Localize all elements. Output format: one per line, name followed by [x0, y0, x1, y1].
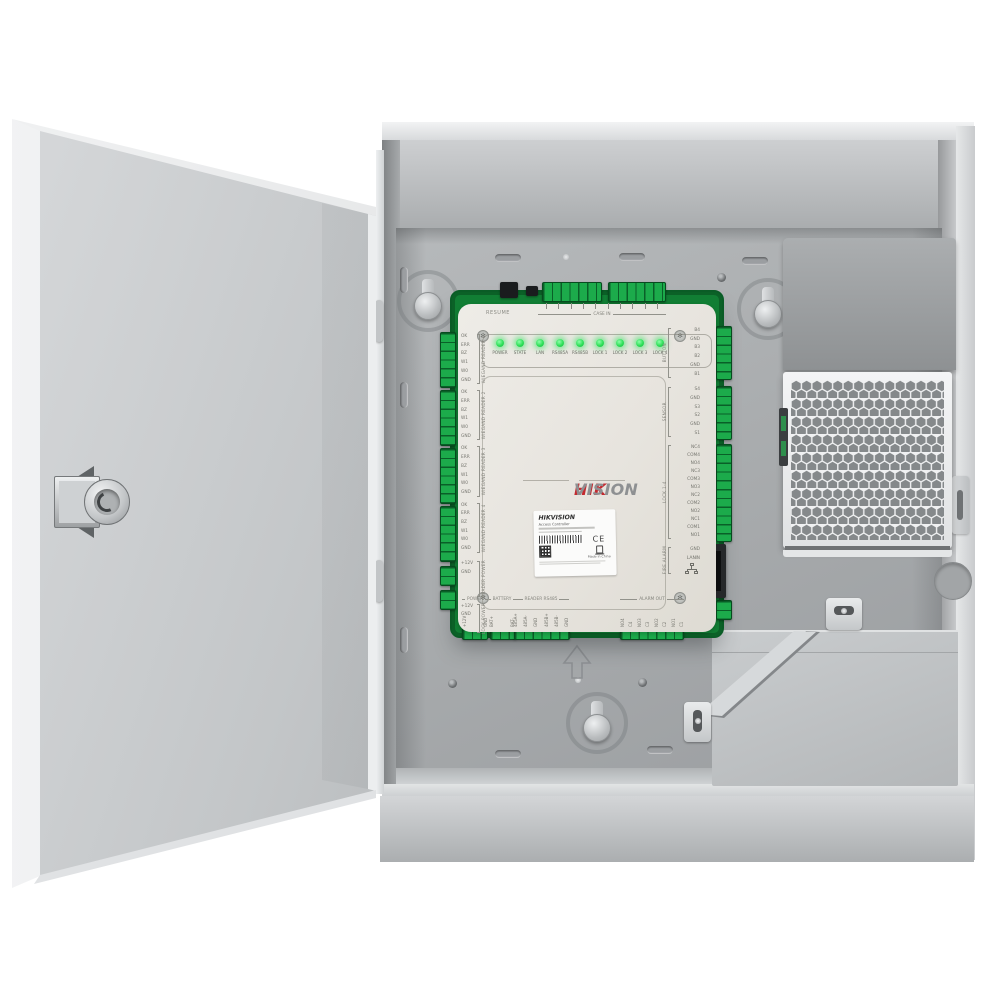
label-text-line: [539, 531, 582, 533]
led-light: [556, 339, 564, 347]
pin-label: GND: [483, 603, 488, 627]
ethernet-icon: [685, 563, 698, 574]
terminal-block-wiegand-2: [440, 390, 456, 446]
right-terminal-labels: BUTTONB4GNDB3B2GNDB1SENSORS4GNDS3S2GNDS1…: [662, 327, 704, 581]
group-name-row: POWER: [462, 596, 488, 602]
pin-label: NO3: [672, 484, 700, 492]
terminal-group-wiegand-reader-1: OKERRBZW1W0GNDWIEGAND READER 1: [461, 333, 489, 385]
pin-labels: OKERRBZW1W0GND: [461, 333, 476, 385]
pin-label: BZ: [461, 463, 476, 472]
pin-label: OK: [461, 333, 476, 342]
logo-vision: VISION: [574, 480, 638, 499]
terminal-group-lock-1-4: LOCK 1-4NC4COM4NO4NC3COM3NO3NC2COM2NO2NC…: [662, 444, 704, 540]
label-address-line: [539, 563, 600, 565]
mounting-slot: [647, 746, 673, 754]
led-item: LOCK 2: [610, 339, 630, 365]
pin-label: GND: [672, 421, 700, 430]
mounting-slot: [400, 627, 408, 653]
terminal-block-button: [716, 326, 732, 380]
pin-label: ERR: [461, 398, 476, 407]
pin-label: GND: [564, 603, 569, 627]
led-label: POWER: [490, 350, 510, 355]
terminal-block-lock: [716, 444, 732, 542]
terminal-block-case-in-b: [608, 282, 666, 302]
group-name: LOCK 1-4: [662, 444, 667, 540]
pin-label: NO4: [620, 603, 625, 627]
group-name: READER POWER: [481, 560, 486, 598]
mounting-screw: [717, 273, 726, 282]
pin-label: ERR: [461, 342, 476, 351]
tamper-switch: [500, 282, 518, 298]
group-name: BUTTON: [662, 327, 667, 379]
led-light: [536, 339, 544, 347]
battery-box-top-edge: [712, 630, 958, 632]
pin-label: NO1: [671, 603, 676, 627]
led-label: STATE: [510, 350, 530, 355]
pin-label: GND: [672, 336, 700, 345]
power-supply-unit: [783, 372, 952, 548]
mounting-slot: [400, 382, 408, 408]
door-lock: [54, 462, 134, 542]
led-light: [616, 339, 624, 347]
pin-label: COM4: [672, 452, 700, 460]
label-text-line: [539, 527, 595, 530]
terminal-group-button: BUTTONB4GNDB3B2GNDB1: [662, 327, 704, 379]
pin-label: OK: [461, 502, 476, 511]
led-label: RS485B: [570, 350, 590, 355]
case-in-group: CASE IN: [538, 303, 666, 309]
terminal-block-fire-alarm: [716, 600, 732, 620]
pin-label: COM2: [672, 500, 700, 508]
led-light: [596, 339, 604, 347]
group-bracket: [668, 387, 671, 437]
led-label: LOCK 2: [610, 350, 630, 355]
pin-label: COM3: [672, 476, 700, 484]
mounting-clamp: [684, 702, 711, 742]
pin-label: GND: [461, 569, 476, 578]
led-label: LOCK 1: [590, 350, 610, 355]
enclosure-bottom-front: [380, 796, 974, 862]
terminal-block-sensor: [716, 386, 732, 440]
pin-label: GND: [461, 489, 476, 498]
terminal-group-wiegand-reader-2: OKERRBZW1W0GNDWIEGAND READER 2: [461, 389, 489, 441]
pin-label: 485B+: [544, 603, 549, 627]
led-label: LAN: [530, 350, 550, 355]
group-bracket: [668, 445, 671, 539]
honeycomb-vent: [791, 380, 944, 540]
terminal-pin-mark: [583, 303, 584, 309]
terminal-group-alarm-out: ALARM OUTNO4C4NO3C3NO2C2NO1C1: [620, 596, 684, 628]
board-component: [526, 286, 538, 296]
led-light: [576, 339, 584, 347]
mounting-slot: [495, 750, 521, 758]
group-name: SENSOR: [662, 386, 667, 438]
pin-label: NO3: [637, 603, 642, 627]
group-name: WIEGAND READER 1: [481, 333, 486, 385]
keyhole-mount-bottom-center: [566, 692, 628, 754]
group-name-row: BATTERY: [489, 596, 515, 602]
terminal-block-case-in-a: [542, 282, 602, 302]
pin-label: S2: [672, 412, 700, 421]
terminal-pin-mark: [571, 303, 572, 309]
lan-group: LAN: [664, 556, 702, 574]
terminal-group-wiegand-reader-3: OKERRBZW1W0GNDWIEGAND READER 3: [461, 445, 489, 497]
up-arrow-emboss: [560, 644, 594, 680]
pin-label: B4: [672, 327, 700, 336]
pin-labels: 485A+485A-GND485B+485B-GND: [513, 603, 569, 627]
enclosure-top-wall: [396, 140, 956, 230]
led-item: STATE: [510, 339, 530, 365]
hinge-knuckle: [375, 300, 383, 342]
terminal-pin-mark: [620, 303, 621, 309]
pin-label: BAT+: [489, 603, 494, 627]
led-status-row: POWERSTATELANRS485ARS485BLOCK 1LOCK 2LOC…: [490, 339, 670, 365]
group-name: WIEGAND READER 2: [481, 389, 486, 441]
pin-label: GND: [461, 377, 476, 386]
group-name: ALARM OUT: [639, 597, 665, 602]
terminal-group-reader-rs485: READER RS485485A+485A-GND485B+485B-GND: [513, 596, 569, 628]
pin-label: W0: [461, 368, 476, 377]
pin-label: ERR: [461, 454, 476, 463]
pin-label: W1: [461, 359, 476, 368]
pin-labels: S4GNDS3S2GNDS1: [672, 386, 700, 438]
group-bracket: [477, 561, 480, 597]
pin-labels: OKERRBZW1W0GND: [461, 445, 476, 497]
pin-label: GND: [672, 546, 700, 555]
terminal-group-sensor: SENSORS4GNDS3S2GNDS1: [662, 386, 704, 438]
led-item: LOCK 3: [630, 339, 650, 365]
hikvision-logo: HIKVISION: [482, 470, 666, 490]
terminal-pin-mark: [546, 303, 547, 309]
pin-label: BZ: [461, 350, 476, 359]
pin-label: C1: [679, 603, 684, 627]
pin-labels: NC4COM4NO4NC3COM3NO3NC2COM2NO2NC1COM1NO1: [672, 444, 700, 540]
panel-hole: [563, 254, 569, 260]
led-item: POWER: [490, 339, 510, 365]
led-item: RS485B: [570, 339, 590, 365]
group-name: WIEGAND READER 4: [481, 502, 486, 554]
group-name: READER RS485: [525, 597, 558, 602]
terminal-pin-mark: [632, 303, 633, 309]
pin-labels: OKERRBZW1W0GND: [461, 502, 476, 554]
pin-label: GND: [533, 603, 538, 627]
group-name: WIEGAND READER 3: [481, 445, 486, 497]
terminal-pin-mark: [558, 303, 559, 309]
left-terminal-labels: OKERRBZW1W0GNDWIEGAND READER 1OKERRBZW1W…: [461, 333, 489, 634]
pin-label: S1: [672, 430, 700, 439]
pin-label: 485A-: [523, 603, 528, 627]
terminal-group-battery: BATTERYBAT+BAT-: [489, 596, 515, 628]
pin-label: ERR: [461, 510, 476, 519]
pin-label: GND: [461, 545, 476, 554]
group-name: BATTERY: [493, 597, 512, 602]
terminal-block-wiegand-1: [440, 332, 456, 388]
pin-labels: NO4C4NO3C3NO2C2NO1C1: [620, 603, 684, 627]
pin-label: W1: [461, 472, 476, 481]
group-bracket: [477, 334, 480, 384]
group-bracket: [477, 503, 480, 553]
pin-label: COM1: [672, 524, 700, 532]
pin-labels: +12VGND: [462, 603, 488, 627]
barcode: [539, 535, 583, 544]
led-item: LOCK 1: [590, 339, 610, 365]
pin-label: 485A+: [513, 603, 518, 627]
terminal-block-lock-power: [440, 590, 456, 610]
pin-label: W1: [461, 415, 476, 424]
mounting-slot: [742, 257, 768, 265]
mounting-slot: [400, 267, 408, 293]
pin-label: NO4: [672, 460, 700, 468]
pin-label: NC3: [672, 468, 700, 476]
pin-labels: B4GNDB3B2GNDB1: [672, 327, 700, 379]
qr-code: [539, 545, 551, 557]
terminal-group-wiegand-reader-4: OKERRBZW1W0GNDWIEGAND READER 4: [461, 502, 489, 554]
group-name: POWER: [467, 597, 483, 602]
pin-label: BZ: [461, 519, 476, 528]
hinge-edge: [376, 150, 384, 794]
enclosure-product-photo: ✻ ✻ ✻ ✻ RESUME CASE IN POWERSTATELANRS48…: [0, 0, 1000, 1000]
pin-label: +12V: [462, 603, 467, 627]
group-name-row: ALARM OUT: [620, 596, 684, 602]
led-label: RS485A: [550, 350, 570, 355]
lan-label: LAN: [664, 556, 702, 561]
group-bracket: [477, 390, 480, 440]
pin-label: NC4: [672, 444, 700, 452]
cable-knockout: [934, 562, 972, 600]
pin-label: GND: [461, 433, 476, 442]
led-label: LOCK 3: [630, 350, 650, 355]
terminal-block-wiegand-4: [440, 506, 456, 562]
terminal-group-power: POWER+12VGND: [462, 596, 488, 628]
label-product-name: Access Controller: [539, 521, 611, 527]
led-item: LAN: [530, 339, 550, 365]
case-in-label: CASE IN: [593, 312, 610, 317]
resume-label: RESUME: [486, 310, 510, 316]
ce-mark: CE: [587, 534, 611, 544]
pin-labels: BAT+BAT-: [489, 603, 515, 627]
battery-box-seam: [712, 652, 958, 653]
mounting-slot: [495, 254, 521, 262]
pin-label: NC1: [672, 516, 700, 524]
power-supply-cover-box: [783, 238, 956, 370]
led-item: RS485A: [550, 339, 570, 365]
led-light: [516, 339, 524, 347]
logo-line: [523, 480, 569, 481]
pin-label: NO2: [672, 508, 700, 516]
pin-label: GND: [672, 362, 700, 371]
pin-label: C3: [645, 603, 650, 627]
pin-label: B2: [672, 353, 700, 362]
led-light: [636, 339, 644, 347]
pin-label: 485B-: [554, 603, 559, 627]
pin-label: S4: [672, 386, 700, 395]
mounting-screw: [638, 678, 647, 687]
pin-label: NC2: [672, 492, 700, 500]
label-made-in: Made in China: [587, 555, 611, 560]
mounting-screw: [448, 679, 457, 688]
pin-label: BZ: [461, 407, 476, 416]
pin-label: +12V: [461, 560, 476, 569]
led-light: [496, 339, 504, 347]
door-latch-bracket: [952, 476, 969, 534]
pin-label: W0: [461, 536, 476, 545]
weee-bin-icon: [596, 545, 603, 553]
group-bracket: [477, 446, 480, 496]
terminal-block-reader-power: [440, 566, 456, 586]
pin-label: B3: [672, 344, 700, 353]
pin-label: B1: [672, 371, 700, 380]
pin-label: W0: [461, 480, 476, 489]
pin-labels: OKERRBZW1W0GND: [461, 389, 476, 441]
group-name-row: READER RS485: [513, 596, 569, 602]
psu-bottom-lip: [783, 550, 952, 557]
pin-label: C4: [628, 603, 633, 627]
mounting-slot: [619, 253, 645, 261]
enclosure-top-rim: [382, 122, 974, 140]
pin-label: C2: [662, 603, 667, 627]
group-bracket: [668, 328, 671, 378]
terminal-group-reader-power: +12VGNDREADER POWER: [461, 560, 489, 598]
pin-label: GND: [672, 395, 700, 404]
pin-label: S3: [672, 404, 700, 413]
pin-label: NO2: [654, 603, 659, 627]
terminal-block-wiegand-3: [440, 448, 456, 504]
terminal-pin-mark: [645, 303, 646, 309]
pin-label: OK: [461, 445, 476, 454]
lock-cylinder: [84, 479, 130, 525]
pin-label: W1: [461, 528, 476, 537]
battery-compartment: [712, 630, 958, 786]
pin-label: OK: [461, 389, 476, 398]
pin-label: NO1: [672, 532, 700, 540]
mounting-clamp: [826, 598, 862, 630]
psu-side-slot: [779, 408, 788, 466]
hinge-knuckle: [375, 560, 383, 602]
pin-labels: +12VGND: [461, 560, 476, 598]
logo-line: [579, 480, 625, 481]
product-label: HIKVISION Access Controller CE Made in C…: [533, 509, 616, 577]
pin-label: W0: [461, 424, 476, 433]
terminal-pin-mark: [608, 303, 609, 309]
terminal-pin-mark: [657, 303, 658, 309]
case-in-pin-marks: [538, 303, 666, 310]
terminal-pin-mark: [595, 303, 596, 309]
